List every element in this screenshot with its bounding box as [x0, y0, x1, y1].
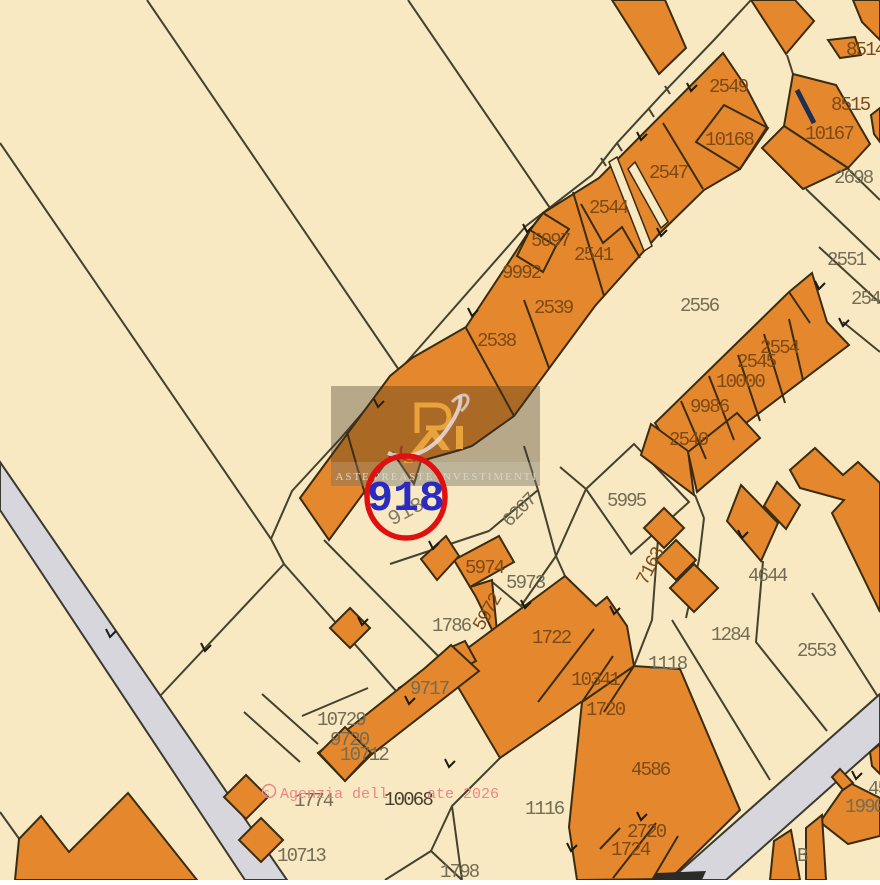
- svg-text:10729: 10729: [317, 709, 366, 731]
- svg-text:10068: 10068: [384, 789, 433, 811]
- svg-text:2544: 2544: [589, 197, 629, 219]
- svg-text:10341: 10341: [571, 669, 620, 691]
- svg-text:8515: 8515: [831, 94, 871, 116]
- svg-text:4644: 4644: [748, 565, 788, 587]
- svg-text:1720: 1720: [586, 699, 626, 721]
- svg-text:1116: 1116: [525, 798, 565, 820]
- svg-text:2541: 2541: [574, 244, 614, 266]
- svg-text:2547: 2547: [649, 162, 688, 184]
- svg-text:8514: 8514: [846, 39, 880, 61]
- svg-text:10713: 10713: [277, 845, 326, 867]
- svg-text:2698: 2698: [834, 167, 874, 189]
- svg-text:5973: 5973: [506, 572, 546, 594]
- svg-text:918: 918: [367, 474, 444, 523]
- svg-text:1118: 1118: [648, 653, 688, 675]
- svg-text:ate 2026: ate 2026: [427, 786, 499, 803]
- svg-text:1786: 1786: [432, 615, 472, 637]
- svg-text:1722: 1722: [532, 627, 572, 649]
- svg-text:4586: 4586: [631, 759, 671, 781]
- svg-text:1798: 1798: [440, 861, 480, 880]
- svg-text:9986: 9986: [690, 396, 730, 418]
- svg-text:10712: 10712: [340, 744, 389, 766]
- svg-text:5995: 5995: [607, 490, 647, 512]
- svg-text:5974: 5974: [465, 557, 505, 579]
- svg-text:2540: 2540: [669, 429, 709, 451]
- svg-text:9717: 9717: [410, 678, 449, 700]
- svg-text:2538: 2538: [477, 330, 517, 352]
- svg-text:2551: 2551: [827, 249, 867, 271]
- svg-text:Agenzia dell: Agenzia dell: [280, 786, 388, 803]
- svg-text:2549: 2549: [709, 76, 749, 98]
- svg-text:1724: 1724: [611, 839, 651, 861]
- svg-text:10167: 10167: [805, 123, 853, 145]
- svg-text:10168: 10168: [705, 129, 754, 151]
- svg-text:10000: 10000: [716, 371, 765, 393]
- svg-text:2545: 2545: [737, 351, 777, 373]
- svg-text:2548: 2548: [851, 288, 880, 310]
- svg-text:1284: 1284: [711, 624, 751, 646]
- svg-text:45: 45: [868, 778, 880, 800]
- svg-text:B: B: [797, 845, 808, 867]
- svg-text:C: C: [264, 789, 270, 799]
- svg-text:5097: 5097: [531, 230, 570, 252]
- svg-text:2553: 2553: [797, 640, 837, 662]
- svg-text:2539: 2539: [534, 297, 574, 319]
- svg-text:9992: 9992: [502, 262, 542, 284]
- svg-text:2556: 2556: [680, 295, 720, 317]
